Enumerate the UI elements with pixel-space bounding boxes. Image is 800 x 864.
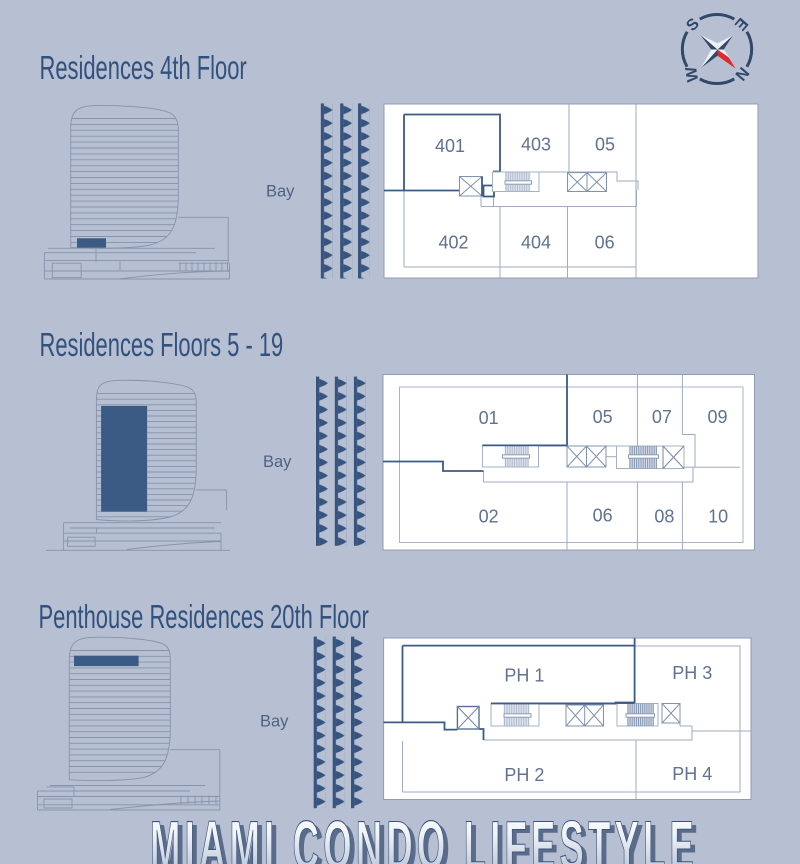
svg-text:404: 404 [521,233,551,253]
svg-text:09: 09 [707,407,727,427]
svg-text:06: 06 [593,506,613,526]
svg-text:401: 401 [435,136,465,156]
svg-text:10: 10 [708,507,728,527]
svg-text:06: 06 [595,233,615,253]
svg-text:07: 07 [652,407,672,427]
svg-text:403: 403 [521,135,551,155]
svg-text:402: 402 [438,233,468,253]
svg-text:PH 1: PH 1 [504,666,544,686]
svg-text:05: 05 [593,407,613,427]
svg-text:PH 3: PH 3 [672,663,712,683]
svg-text:02: 02 [479,507,499,527]
svg-text:Penthouse Residences 20th Floo: Penthouse Residences 20th Floor [39,597,369,635]
svg-text:Bay: Bay [260,713,289,731]
svg-text:01: 01 [479,408,499,428]
svg-text:MIAMI CONDO LIFESTYLE: MIAMI CONDO LIFESTYLE [150,806,698,864]
svg-text:Bay: Bay [263,453,292,471]
svg-text:PH 4: PH 4 [672,764,712,784]
svg-text:PH 2: PH 2 [504,765,544,785]
svg-text:Residences 4th Floor: Residences 4th Floor [40,48,247,86]
svg-text:Bay: Bay [266,182,295,200]
svg-text:Residences Floors 5 - 19: Residences Floors 5 - 19 [40,325,284,363]
svg-text:05: 05 [595,135,615,155]
svg-text:08: 08 [654,507,674,527]
